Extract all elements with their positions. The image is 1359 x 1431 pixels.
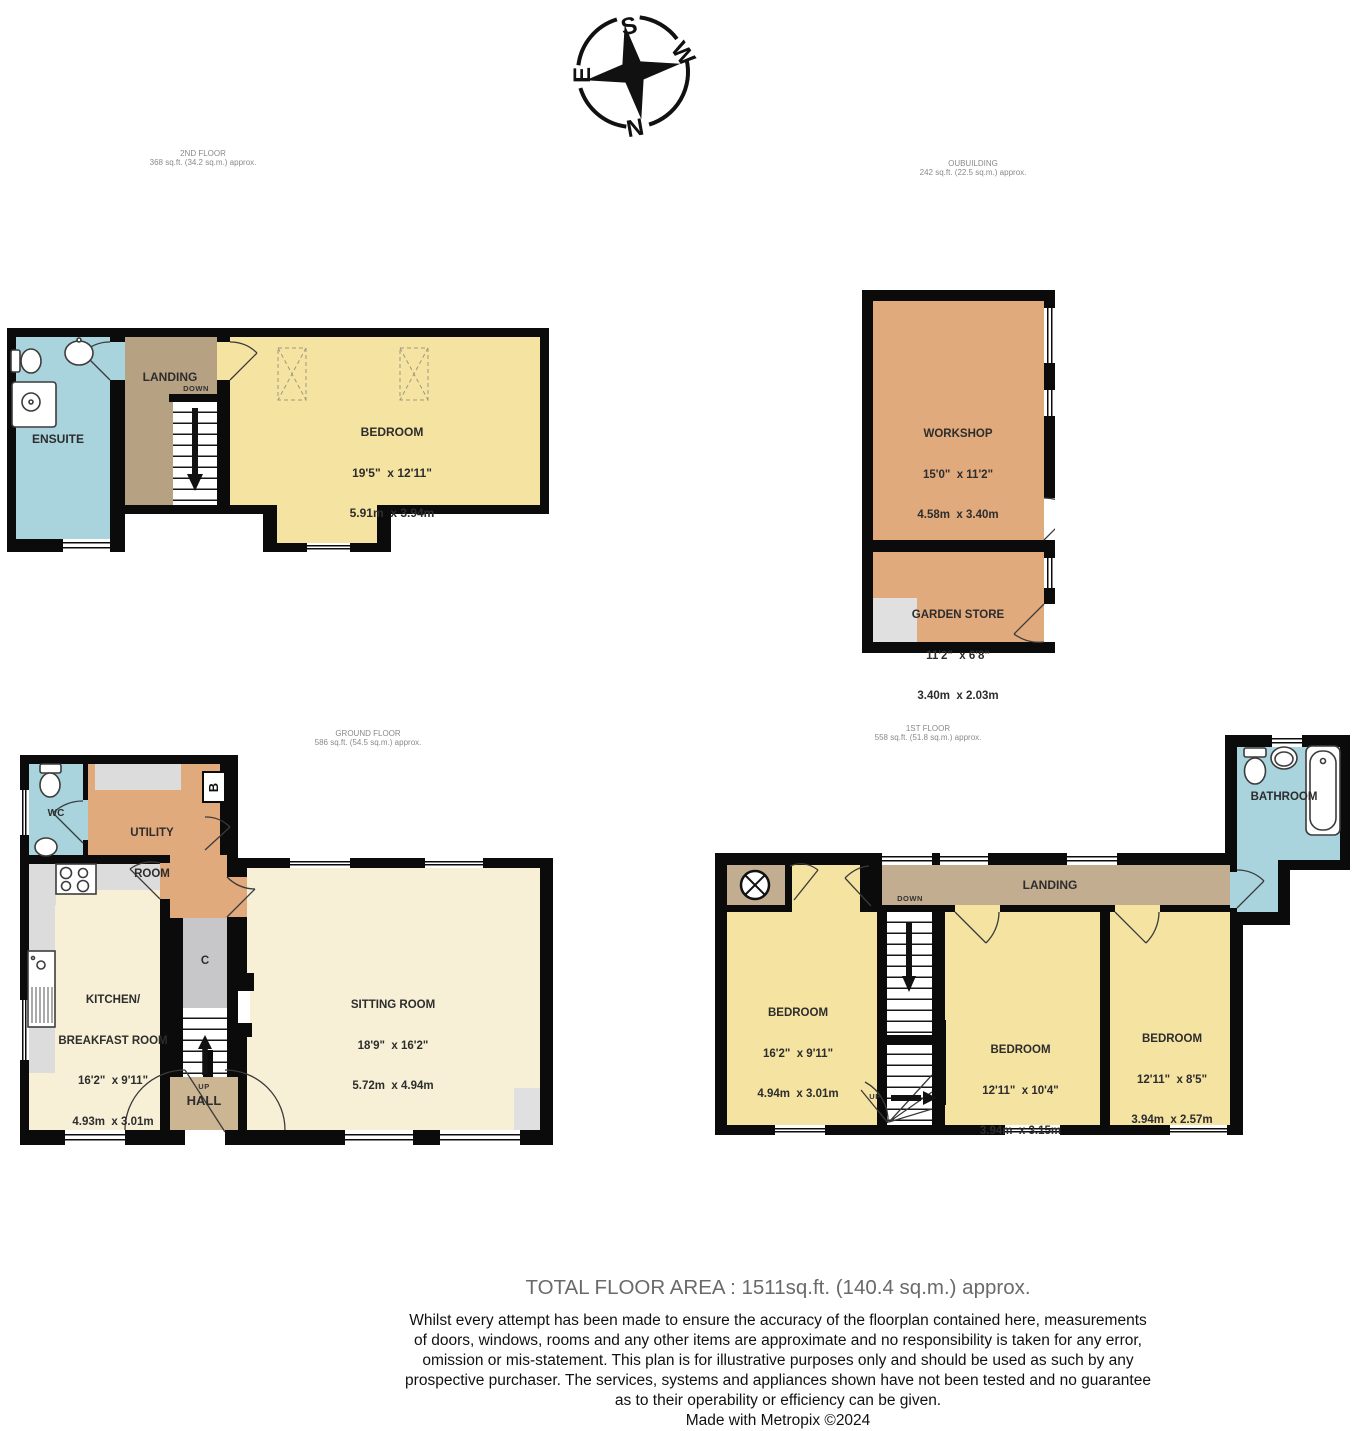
room-dims-imperial: 15'0" x 11'2" xyxy=(878,469,1038,483)
up-label: UP xyxy=(170,1082,238,1091)
toilet-icon xyxy=(21,349,41,373)
stove-icon xyxy=(62,882,71,891)
room-name: BEDROOM xyxy=(265,426,519,440)
outbuilding-plan: WORKSHOP 15'0" x 11'2" 4.58m x 3.40m GAR… xyxy=(862,290,1055,653)
ground-floor-plan: WC UTILITY ROOM B KITCHEN/ BREAKFAST ROO… xyxy=(20,755,553,1145)
disclaimer-line: omission or mis-statement. This plan is … xyxy=(348,1351,1208,1371)
toilet-icon xyxy=(1244,748,1266,757)
shower-icon xyxy=(29,400,33,404)
room-dims-imperial: 16'2" x 9'11" xyxy=(33,1075,193,1089)
kitchen-sink-icon xyxy=(32,957,35,960)
bedroom-3-label: BEDROOM 12'11" x 8'5" 3.94m x 2.57m xyxy=(1097,1006,1247,1155)
room-dims-imperial: 12'11" x 8'5" xyxy=(1097,1074,1247,1088)
bedroom-2-label: BEDROOM 12'11" x 10'4" 3.94m x 3.15m xyxy=(943,1017,1098,1166)
room-name: GARDEN STORE xyxy=(878,609,1038,623)
first-floor-plan: BATHROOM LANDING DOWN UP BEDROOM 16'2" x… xyxy=(715,730,1355,1140)
room-dims-metric: 5.91m x 3.94m xyxy=(265,507,519,521)
ground-floor-title: GROUND FLOOR 586 sq.ft. (54.5 sq.m.) app… xyxy=(258,729,478,747)
room-dims-metric: 3.94m x 2.57m xyxy=(1097,1114,1247,1128)
room-name: UTILITY xyxy=(102,827,202,841)
garden-store-label: GARDEN STORE 11'2" x 6'8" 3.40m x 2.03m xyxy=(878,582,1038,731)
room-dims-imperial: 12'11" x 10'4" xyxy=(943,1085,1098,1099)
compass-east: E xyxy=(569,67,596,83)
second-floor-title: 2ND FLOOR 368 sq.ft. (34.2 sq.m.) approx… xyxy=(93,149,313,167)
room-dims-metric: 5.72m x 4.94m xyxy=(268,1080,518,1094)
room-name: WORKSHOP xyxy=(878,428,1038,442)
room-dims-imperial: 18'9" x 16'2" xyxy=(268,1040,518,1054)
sink-icon xyxy=(77,338,81,342)
room-dims-metric: 4.94m x 3.01m xyxy=(723,1088,873,1102)
down-label: DOWN xyxy=(885,894,935,903)
bathroom-label: BATHROOM xyxy=(1228,791,1340,805)
disclaimer-line: as to their operability or efficiency ca… xyxy=(348,1391,1208,1411)
utility-label: UTILITY ROOM xyxy=(102,800,202,908)
stairs-down-arrow-icon xyxy=(187,408,203,491)
workshop-label: WORKSHOP 15'0" x 11'2" 4.58m x 3.40m xyxy=(878,401,1038,550)
room-dims-metric: 4.93m x 3.01m xyxy=(33,1116,193,1130)
sink-icon xyxy=(35,838,57,856)
room-name: SITTING ROOM xyxy=(268,999,518,1013)
total-floor-area: TOTAL FLOOR AREA : 1511sq.ft. (140.4 sq.… xyxy=(348,1276,1208,1300)
room-name: ROOM xyxy=(102,868,202,882)
disclaimer-line: prospective purchaser. The services, sys… xyxy=(348,1371,1208,1391)
bedroom-1-label: BEDROOM 16'2" x 9'11" 4.94m x 3.01m xyxy=(723,980,873,1129)
cupboard-label: C xyxy=(183,955,227,969)
toilet-icon xyxy=(40,764,61,773)
metropix-credit: Made with Metropix ©2024 xyxy=(348,1411,1208,1431)
room-dims-metric: 3.40m x 2.03m xyxy=(878,690,1038,704)
compass-south: S xyxy=(618,12,639,42)
room-dims-imperial: 16'2" x 9'11" xyxy=(723,1048,873,1062)
sitting-room-label: SITTING ROOM 18'9" x 16'2" 5.72m x 4.94m xyxy=(268,972,518,1121)
room-dims-imperial: 19'5" x 12'11" xyxy=(265,467,519,481)
disclaimer-line: Whilst every attempt has been made to en… xyxy=(348,1311,1208,1331)
room-name: BEDROOM xyxy=(943,1044,1098,1058)
title-text: OUBUILDING xyxy=(863,159,1083,168)
landing-label: LANDING xyxy=(955,879,1145,893)
kitchen-label: KITCHEN/ BREAKFAST ROOM 16'2" x 9'11" 4.… xyxy=(33,967,193,1156)
ensuite-label: ENSUITE xyxy=(11,433,105,447)
second-floor-plan: ENSUITE LANDING DOWN BEDROOM 19'5" x 12'… xyxy=(7,328,549,554)
landing-label: LANDING xyxy=(120,371,220,385)
wc-label: WC xyxy=(29,807,83,821)
toilet-icon xyxy=(11,350,20,372)
toilet-icon xyxy=(1245,758,1266,784)
title-text: GROUND FLOOR xyxy=(258,729,478,738)
bathtub-icon xyxy=(1321,759,1326,764)
floorplan-page: S W N E 2ND FLOOR 368 sq.ft. (34.2 sq.m.… xyxy=(0,0,1359,1431)
room-name: BREAKFAST ROOM xyxy=(33,1035,193,1049)
stove-icon xyxy=(78,881,89,892)
sink-icon xyxy=(1275,752,1293,766)
compass-rose: S W N E xyxy=(568,4,700,140)
boiler-icon: B xyxy=(202,771,226,803)
bedroom-label: BEDROOM 19'5" x 12'11" 5.91m x 3.94m xyxy=(265,399,519,548)
title-area: 586 sq.ft. (54.5 sq.m.) approx. xyxy=(258,738,478,747)
title-area: 368 sq.ft. (34.2 sq.m.) approx. xyxy=(93,158,313,167)
outbuilding-title: OUBUILDING 242 sq.ft. (22.5 sq.m.) appro… xyxy=(863,159,1083,177)
title-area: 242 sq.ft. (22.5 sq.m.) approx. xyxy=(863,168,1083,177)
toilet-icon xyxy=(40,773,60,797)
compass-north: N xyxy=(624,112,646,140)
room-dims-metric: 3.94m x 3.15m xyxy=(943,1125,1098,1139)
hall-label: HALL xyxy=(170,1094,238,1108)
room-dims-imperial: 11'2" x 6'8" xyxy=(878,650,1038,664)
title-text: 2ND FLOOR xyxy=(93,149,313,158)
room-name: BEDROOM xyxy=(1097,1033,1247,1047)
room-name: BEDROOM xyxy=(723,1007,873,1021)
footer: TOTAL FLOOR AREA : 1511sq.ft. (140.4 sq.… xyxy=(348,1276,1208,1431)
ceiling-light-icon xyxy=(741,871,769,899)
skylight-icon xyxy=(278,348,428,400)
sink-icon xyxy=(65,341,93,365)
boiler-label: B xyxy=(206,782,221,791)
stairs-down-arrow-icon xyxy=(902,922,916,992)
room-dims-metric: 4.58m x 3.40m xyxy=(878,509,1038,523)
room-name: KITCHEN/ xyxy=(33,994,193,1008)
disclaimer-line: of doors, windows, rooms and any other i… xyxy=(348,1331,1208,1351)
stove-icon xyxy=(79,869,88,878)
stairs-up-arrow-icon xyxy=(198,1035,212,1075)
down-label: DOWN xyxy=(151,384,241,393)
stove-icon xyxy=(61,868,72,879)
